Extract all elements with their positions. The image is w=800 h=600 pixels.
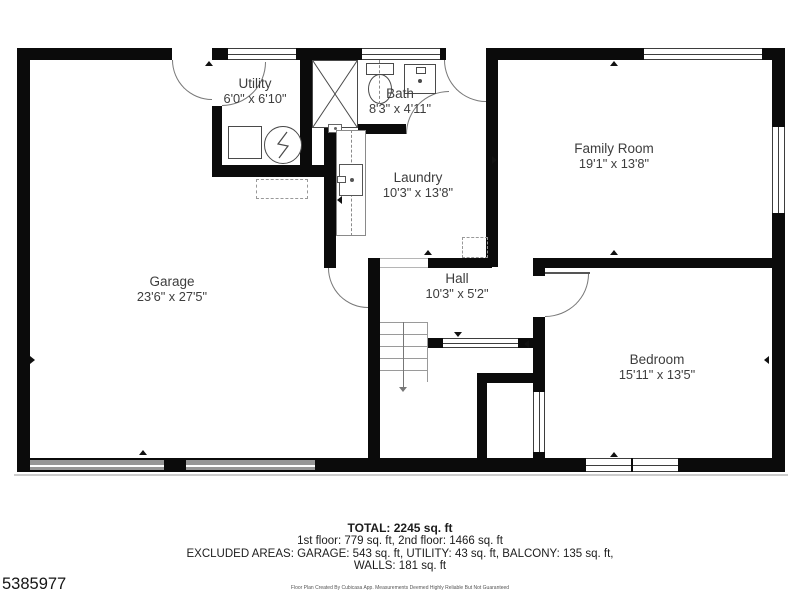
tick — [30, 356, 35, 364]
appliance-dashed — [462, 237, 488, 258]
room-name: Garage — [97, 274, 247, 289]
wall-utility-right — [300, 60, 312, 177]
wall-outer-top — [486, 48, 644, 60]
wall-outer-top — [212, 48, 228, 60]
window — [772, 127, 785, 213]
wall-outer-top — [17, 48, 172, 60]
room-label-bedroom: Bedroom 15'11" x 13'5" — [582, 352, 732, 382]
bath-sink — [404, 64, 436, 94]
appliance-dashed — [256, 179, 308, 199]
window — [586, 458, 631, 472]
garage-door — [30, 460, 164, 470]
room-dims: 23'6" x 27'5" — [97, 289, 247, 304]
tick — [610, 452, 618, 457]
stairs — [380, 322, 428, 382]
tick — [424, 250, 432, 255]
wall-outer-left — [17, 48, 30, 472]
disclaimer: Floor Plan Created By Cubicasa App. Meas… — [100, 585, 700, 591]
door-arc-garage-entry — [172, 60, 212, 100]
tick — [454, 332, 462, 337]
tick — [139, 450, 147, 455]
window — [633, 458, 678, 472]
stairs-arrow-line — [403, 322, 404, 388]
door-arc-bath — [406, 91, 449, 134]
wall-bedroom-left — [533, 452, 545, 460]
room-label-family-room: Family Room 19'1" x 13'8" — [539, 141, 689, 171]
water-heater — [264, 126, 302, 164]
wall-bedroom-top — [533, 258, 772, 268]
window — [644, 48, 762, 60]
excluded-areas: EXCLUDED AREAS: GARAGE: 543 sq. ft, UTIL… — [100, 548, 700, 561]
door-arc-bedroom — [545, 274, 589, 317]
wall-closet-left — [477, 373, 487, 467]
area-summary: TOTAL: 2245 sq. ft 1st floor: 779 sq. ft… — [100, 521, 700, 591]
wall-bedroom-left — [533, 268, 545, 276]
tick — [524, 340, 529, 348]
opening-laundry-hall — [380, 258, 428, 268]
listing-number: 5385977 — [2, 575, 66, 594]
floor-plan-page: Utility 6'0" x 6'10" Bath 8'3" x 4'11" L… — [0, 0, 800, 600]
wall-outer-top — [296, 48, 362, 60]
floor-areas: 1st floor: 779 sq. ft, 2nd floor: 1466 s… — [100, 535, 700, 548]
door-arc-garage-landing — [328, 268, 368, 308]
toilet — [368, 74, 392, 104]
room-name: Family Room — [539, 141, 689, 156]
wall-utility-left — [212, 106, 222, 177]
window — [443, 338, 518, 348]
wall-hall-bottom — [428, 338, 443, 348]
tick — [337, 196, 342, 204]
wall-outer-right — [772, 48, 785, 472]
window — [533, 421, 545, 452]
toilet-centerline — [379, 60, 380, 104]
door-leaf-bedroom — [545, 272, 590, 274]
tick — [492, 156, 497, 164]
total-area: TOTAL: 2245 sq. ft — [100, 521, 700, 535]
window — [533, 392, 545, 421]
tick — [610, 250, 618, 255]
room-name: Hall — [382, 271, 532, 286]
utility-appliance — [228, 126, 262, 159]
wall-stairwell-garage — [368, 258, 380, 460]
window — [362, 48, 440, 60]
garage-door — [186, 460, 315, 470]
wall-outer-top — [440, 48, 446, 60]
room-name: Bedroom — [582, 352, 732, 367]
wall-hall-top — [428, 258, 492, 268]
tick — [610, 61, 618, 66]
laundry-sink — [339, 164, 363, 196]
tick — [205, 61, 213, 66]
window — [228, 48, 296, 60]
wall-utility-bottom — [212, 165, 324, 177]
room-label-hall: Hall 10'3" x 5'2" — [382, 271, 532, 301]
room-dims: 15'11" x 13'5" — [582, 367, 732, 382]
shower — [312, 60, 358, 128]
walls-area: WALLS: 181 sq. ft — [100, 560, 700, 573]
plan-base-line — [14, 474, 788, 476]
room-dims: 19'1" x 13'8" — [539, 156, 689, 171]
stairs-down-arrow-icon — [399, 387, 407, 392]
room-label-garage: Garage 23'6" x 27'5" — [97, 274, 247, 304]
wall-laundry-left — [324, 128, 336, 268]
door-arc-front-entry — [444, 60, 486, 102]
door-arc-utility — [222, 62, 266, 106]
room-dims: 10'3" x 5'2" — [382, 286, 532, 301]
tick — [764, 356, 769, 364]
